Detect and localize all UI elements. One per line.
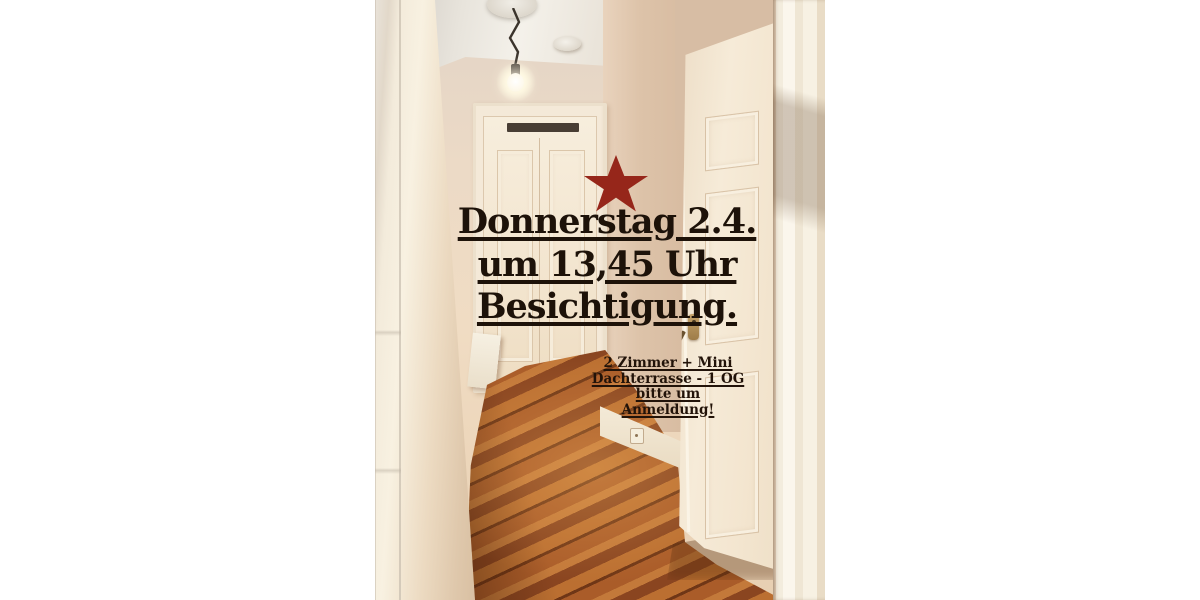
- door-panel: [705, 111, 759, 172]
- door-closer: [507, 123, 579, 132]
- headline: Donnerstag 2.4. um 13,45 Uhr Besichtigun…: [382, 201, 825, 329]
- details-note: 2 Zimmer + Mini Dachterrasse - 1 OG bitt…: [568, 356, 768, 418]
- flyer-canvas: Donnerstag 2.4. um 13,45 Uhr Besichtigun…: [0, 0, 1200, 600]
- apartment-hallway-photo: Donnerstag 2.4. um 13,45 Uhr Besichtigun…: [375, 0, 825, 600]
- details-line-rooms: 2 Zimmer + Mini: [568, 356, 768, 372]
- headline-line-date: Donnerstag 2.4.: [382, 201, 825, 244]
- power-outlet: [630, 428, 644, 444]
- smoke-detector: [553, 36, 581, 51]
- light-bulb: [507, 73, 524, 92]
- details-line-anmeldung: Anmeldung!: [568, 403, 768, 419]
- headline-line-time: um 13,45 Uhr: [382, 244, 825, 287]
- headline-line-event: Besichtigung.: [382, 286, 825, 329]
- details-line-terrace: Dachterrasse - 1 OG: [568, 372, 768, 388]
- details-line-bitte: bitte um: [568, 387, 768, 403]
